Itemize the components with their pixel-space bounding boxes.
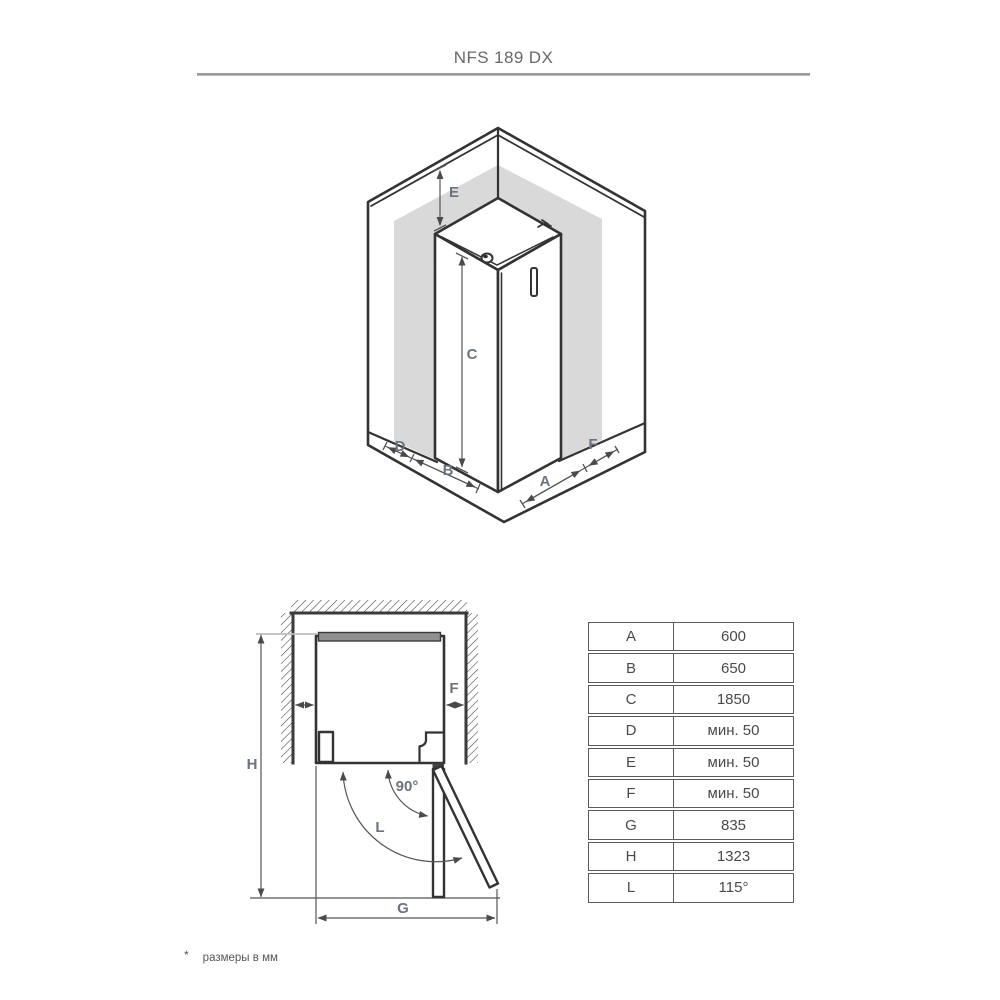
dim-label-A: A [540,473,551,490]
table-key: B [589,654,674,681]
dim-label-D: D [395,438,406,455]
page: NFS 189 DX [0,0,1000,1000]
table-key: D [589,717,674,744]
table-row: H 1323 [588,842,794,871]
dim-label-G: G [397,900,409,917]
plan-diagram: 90° L H F G [240,580,530,940]
corner-unit [319,732,333,762]
table-key: C [589,686,674,713]
freezer-isometric [435,198,561,492]
dim-H: H [247,635,261,897]
table-row: D мин. 50 [588,716,794,745]
dim-label-E: E [449,184,459,201]
table-value: 650 [674,654,793,681]
table-key: L [589,874,674,901]
table-row: C 1850 [588,685,794,714]
table-row: L 115° [588,873,794,902]
dimensions-table: A 600 B 650 C 1850 D мин. 50 E мин. 50 F… [588,622,794,905]
isometric-diagram: E C D B A F [355,115,665,535]
table-row: E мин. 50 [588,748,794,777]
table-key: E [589,749,674,776]
dim-label-C: C [467,346,478,363]
footnote-text: размеры в мм [203,952,278,964]
title-divider [197,73,810,76]
table-value: 1323 [674,843,793,870]
table-key: F [589,780,674,807]
table-key: H [589,843,674,870]
footnote-mark: * [184,949,189,961]
dim-label-F: F [449,680,458,697]
table-value: 835 [674,811,793,838]
table-key: A [589,623,674,650]
footnote: * размеры в мм [184,949,278,964]
door-handle [531,268,537,296]
page-title: NFS 189 DX [197,48,810,68]
table-key: G [589,811,674,838]
table-row: A 600 [588,622,794,651]
back-spacer-bar [319,633,441,642]
table-row: F мин. 50 [588,779,794,808]
dim-label-B: B [443,462,454,479]
dim-label-angle: 90° [396,778,419,795]
table-value: 600 [674,623,793,650]
table-value: 115° [674,874,793,901]
hinge-icon [482,254,493,263]
table-row: B 650 [588,653,794,682]
table-value: мин. 50 [674,749,793,776]
dim-label-H: H [247,756,258,773]
dim-label-L: L [375,819,384,836]
table-value: мин. 50 [674,717,793,744]
dim-label-F: F [588,436,597,453]
table-value: 1850 [674,686,793,713]
table-row: G 835 [588,810,794,839]
table-value: мин. 50 [674,780,793,807]
